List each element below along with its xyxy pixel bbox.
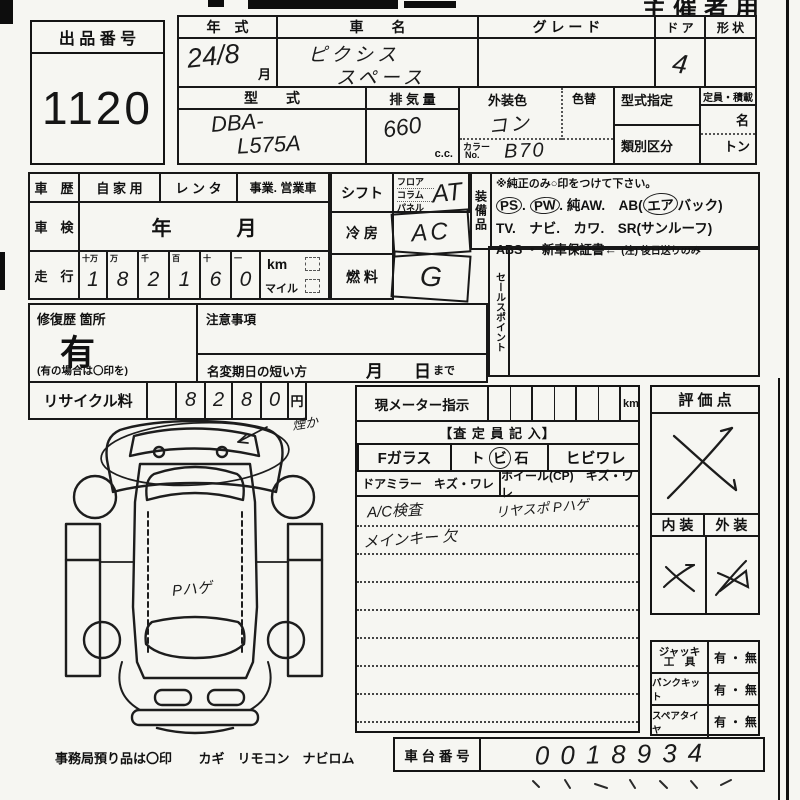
scan-mark bbox=[0, 252, 5, 290]
rename-row: 名変期日の短い方 月 日 まで bbox=[196, 353, 488, 383]
interior-exterior-marks bbox=[652, 537, 758, 613]
puncture-row: パンクキット 有 ・ 無 bbox=[652, 674, 758, 706]
model-label: 型 式 bbox=[179, 88, 365, 110]
km-label: km bbox=[267, 256, 287, 272]
shift-value: AT bbox=[431, 178, 464, 210]
model-line2: L575A bbox=[236, 130, 301, 159]
history-private: 自 家 用 bbox=[78, 172, 161, 203]
digit-value: 1 bbox=[80, 264, 106, 296]
office-items: カギ リモコン ナビロム bbox=[198, 751, 354, 766]
evaluation-label: 評 価 点 bbox=[652, 387, 758, 414]
puncture-label: パンクキット bbox=[652, 674, 709, 704]
note-rule bbox=[357, 581, 638, 583]
equip-ps-circled: PS bbox=[495, 196, 522, 215]
equip-dot: . bbox=[559, 198, 563, 213]
type-designation-cell: 型式指定 bbox=[613, 86, 701, 126]
equip-row1-close: バック) bbox=[678, 198, 723, 213]
note-rule bbox=[357, 693, 638, 695]
tick-marks bbox=[525, 775, 760, 795]
capacity-label: 定員・積載 bbox=[701, 88, 755, 106]
car-name-label: 車 名 bbox=[278, 17, 477, 39]
equipment-row1: PS. PW. 純AW. AB(エアバック) bbox=[496, 193, 756, 215]
year-cell: 年 式 24/8 月 bbox=[177, 15, 278, 88]
assessor-box: 現メーター指示 km 【査 定 員 記 入】 Fガラス ト ビ 石 ヒビワレ ド… bbox=[355, 385, 640, 733]
capacity-ton: トン bbox=[724, 136, 750, 155]
year-label: 年 式 bbox=[179, 17, 276, 39]
interior-exterior-header: 内 装 外 装 bbox=[652, 513, 758, 537]
note-rule bbox=[357, 665, 638, 667]
equipment-box: 装備品 ※純正のみ○印をつけて下さい。 PS. PW. 純AW. AB(エアバッ… bbox=[470, 172, 760, 250]
spare-row: スペアタイヤ 有 ・ 無 bbox=[652, 706, 758, 737]
mileage-digit-10: 十 6 bbox=[199, 250, 232, 300]
fuel-label: 燃 料 bbox=[330, 253, 394, 300]
digit-value: 6 bbox=[201, 264, 230, 296]
caution-box: 注意事項 bbox=[196, 303, 488, 355]
repair-box: 修復歴 箇所 有 (有の場合は〇印を) bbox=[28, 303, 198, 383]
header-cutoff-text bbox=[404, 1, 456, 8]
meter-box-5 bbox=[577, 387, 599, 420]
scan-mark bbox=[0, 0, 13, 24]
interior-label: 内 装 bbox=[652, 515, 705, 535]
jack-yesno: 有 ・ 無 bbox=[709, 642, 762, 672]
meter-row: 現メーター指示 km bbox=[357, 387, 638, 422]
mileage-digit-1k: 千 2 bbox=[137, 250, 170, 300]
rename-label: 名変期日の短い方 bbox=[207, 361, 307, 380]
jack-label: ジャッキ 工 具 bbox=[652, 642, 709, 672]
displacement-cell: 排 気 量 660 c.c. bbox=[365, 86, 460, 165]
mirror-wheel-row: ドアミラー キズ・ワレ ホイール(CP) キズ・ワレ bbox=[357, 472, 638, 497]
lot-label: 出 品 番 号 bbox=[32, 22, 163, 54]
digit-value: 1 bbox=[170, 264, 199, 296]
capacity-divider bbox=[701, 133, 755, 135]
car-name-cell: 車 名 ピクシス スペース bbox=[276, 15, 479, 88]
diagram-roof-note: Pハゲ bbox=[171, 576, 213, 600]
note-rule bbox=[357, 609, 638, 611]
header-cutoff-text bbox=[208, 0, 224, 7]
meter-unit: km bbox=[621, 387, 641, 420]
note-rule bbox=[357, 525, 638, 527]
marks-divider bbox=[705, 537, 707, 613]
equipment-note: ※純正のみ○印をつけて下さい。 bbox=[496, 175, 756, 191]
shift-opt-column: コラム bbox=[397, 188, 434, 202]
history-label: 車 歴 bbox=[28, 172, 80, 203]
organizer-label-clip: 主催者用 bbox=[640, 0, 770, 15]
displacement-label: 排 気 量 bbox=[367, 88, 458, 110]
shift-value-cell: フロア コラム パネル AT bbox=[392, 172, 470, 213]
diagram-front-note: 煙か bbox=[291, 411, 319, 433]
color-divider-v bbox=[561, 88, 563, 140]
tools-box: ジャッキ 工 具 有 ・ 無 パンクキット 有 ・ 無 スペアタイヤ 有 ・ 無 bbox=[650, 640, 760, 736]
equip-row1-rest: 純AW. AB( bbox=[567, 198, 643, 213]
office-note: 事務局預り品は〇印 bbox=[55, 751, 172, 766]
wheel-label: ホイール(CP) キズ・ワレ bbox=[499, 472, 642, 495]
tobi-r: 石 bbox=[515, 448, 529, 468]
shift-opt-floor: フロア bbox=[397, 175, 434, 189]
rename-made: まで bbox=[433, 362, 455, 378]
header-cutoff-text bbox=[248, 0, 398, 9]
exterior-color-cell: 外装色 色替 コン カラー No. B70 bbox=[458, 86, 615, 165]
mileage-unit-cell: km マイル bbox=[259, 250, 330, 300]
year-month-suffix: 月 bbox=[258, 64, 271, 83]
digit-header: 百 bbox=[170, 252, 199, 264]
rename-month: 月 bbox=[366, 357, 383, 382]
meter-box-3 bbox=[533, 387, 555, 420]
repair-note: (有の場合は〇印を) bbox=[37, 363, 128, 378]
displacement-value: 660 bbox=[381, 111, 423, 143]
mileage-digit-1: 一 0 bbox=[230, 250, 261, 300]
shape-label: 形 状 bbox=[706, 17, 755, 39]
equipment-row2: TV. ナビ. カワ. SR(サンルーフ) bbox=[496, 217, 756, 237]
fuel-value: G bbox=[390, 250, 471, 302]
class-category-cell: 類別区分 bbox=[613, 124, 701, 165]
assessor-note-3: メインキー 欠 bbox=[362, 525, 457, 553]
shape-cell: 形 状 bbox=[704, 15, 757, 88]
meter-box-2 bbox=[511, 387, 533, 420]
color-no-label2: No. bbox=[465, 150, 480, 160]
displacement-unit: c.c. bbox=[435, 148, 453, 160]
km-checkbox bbox=[305, 257, 320, 271]
exterior-x-mark bbox=[712, 557, 754, 601]
model-cell: 型 式 DBA- L575A bbox=[177, 86, 367, 165]
assessor-note-1: A/C検査 bbox=[366, 499, 422, 523]
class-category-label: 類別区分 bbox=[615, 126, 699, 155]
tobi-l: ト bbox=[471, 448, 485, 468]
door-mirror-label: ドアミラー キズ・ワレ bbox=[357, 472, 499, 495]
shaken-value-cell: 年 月 bbox=[78, 201, 330, 252]
salespoint-strip-label: セールスポイント bbox=[490, 248, 510, 375]
organizer-label: 主催者用 bbox=[642, 0, 766, 15]
door-cell: ド ア 4 bbox=[654, 15, 706, 88]
color-change-label: 色替 bbox=[572, 90, 596, 107]
office-note-row: 事務局預り品は〇印 カギ リモコン ナビロム bbox=[55, 748, 354, 768]
chassis-box: 車 台 番 号 0018934 bbox=[393, 737, 765, 772]
year-value: 24/8 bbox=[186, 38, 242, 74]
shaken-month: 月 bbox=[237, 212, 257, 241]
history-rental: レ ン タ bbox=[159, 172, 238, 203]
door-value: 4 bbox=[653, 36, 707, 92]
auction-sheet: 主催者用 出 品 番 号 1120 年 式 24/8 月 車 名 ピクシス スペ… bbox=[0, 0, 800, 800]
assessor-header: 【査 定 員 記 入】 bbox=[357, 422, 638, 445]
grade-cell: グ レ ー ド bbox=[477, 15, 656, 88]
digit-value: 8 bbox=[108, 264, 137, 296]
equip-air-circled: エア bbox=[642, 192, 678, 216]
digit-header: 千 bbox=[139, 252, 168, 264]
score-x-mark bbox=[652, 414, 758, 515]
page-edge-line bbox=[786, 0, 789, 800]
salespoint-box: セールスポイント bbox=[488, 246, 760, 377]
mileage-label: 走 行 bbox=[28, 250, 80, 300]
meter-box-6 bbox=[599, 387, 621, 420]
mile-checkbox bbox=[305, 279, 320, 293]
front-glass-label: Fガラス bbox=[357, 443, 452, 472]
note-rule bbox=[357, 637, 638, 639]
digit-header: 十 bbox=[201, 252, 230, 264]
shaken-label: 車 検 bbox=[28, 201, 80, 252]
caution-label: 注意事項 bbox=[206, 309, 256, 328]
digit-value: 0 bbox=[232, 264, 259, 296]
meter-label: 現メーター指示 bbox=[357, 387, 489, 420]
meter-box-1 bbox=[489, 387, 511, 420]
type-designation-label: 型式指定 bbox=[615, 88, 699, 109]
digit-header: 十万 bbox=[80, 252, 106, 264]
shift-label: シフト bbox=[330, 172, 394, 213]
equip-pw-circled: PW bbox=[529, 196, 560, 215]
chassis-value: 0018934 bbox=[481, 737, 767, 773]
chassis-label: 車 台 番 号 bbox=[395, 739, 481, 770]
mileage-digit-100k: 十万 1 bbox=[78, 250, 108, 300]
capacity-cell: 定員・積載 名 トン bbox=[699, 86, 757, 165]
history-business: 事業. 営業車 bbox=[236, 172, 330, 203]
spare-yesno: 有 ・ 無 bbox=[709, 706, 762, 737]
note-rule bbox=[357, 721, 638, 723]
digit-header: 一 bbox=[232, 252, 259, 264]
rename-day: 日 bbox=[414, 357, 431, 382]
digit-header: 万 bbox=[108, 252, 137, 264]
page-edge-line-inner bbox=[778, 378, 780, 800]
puncture-yesno: 有 ・ 無 bbox=[709, 674, 762, 704]
lot-number: 1120 bbox=[32, 54, 163, 162]
grade-label: グ レ ー ド bbox=[479, 17, 654, 39]
jack-row: ジャッキ 工 具 有 ・ 無 bbox=[652, 642, 758, 674]
shaken-year: 年 bbox=[152, 212, 172, 241]
note-rule bbox=[357, 553, 638, 555]
interior-x-mark bbox=[658, 559, 700, 599]
meter-box-4 bbox=[555, 387, 577, 420]
digit-value: 2 bbox=[139, 264, 168, 296]
equip-dot: . bbox=[522, 198, 526, 213]
exterior-color-value: コン bbox=[487, 108, 534, 139]
color-no-value: B70 bbox=[504, 139, 546, 163]
ac-label: 冷 房 bbox=[330, 211, 394, 255]
exterior-label: 外 装 bbox=[705, 515, 758, 535]
evaluation-box: 評 価 点 内 装 外 装 bbox=[650, 385, 760, 615]
jack-label-line2: 工 具 bbox=[664, 657, 696, 668]
equipment-strip-label: 装備品 bbox=[472, 174, 492, 248]
exterior-color-label: 外装色 bbox=[488, 90, 527, 109]
mileage-digit-10k: 万 8 bbox=[106, 250, 139, 300]
mileage-digit-100: 百 1 bbox=[168, 250, 201, 300]
lot-box: 出 品 番 号 1120 bbox=[30, 20, 165, 165]
capacity-person: 名 bbox=[736, 110, 749, 129]
spare-label: スペアタイヤ bbox=[652, 706, 709, 737]
mile-label: マイル bbox=[265, 280, 298, 296]
